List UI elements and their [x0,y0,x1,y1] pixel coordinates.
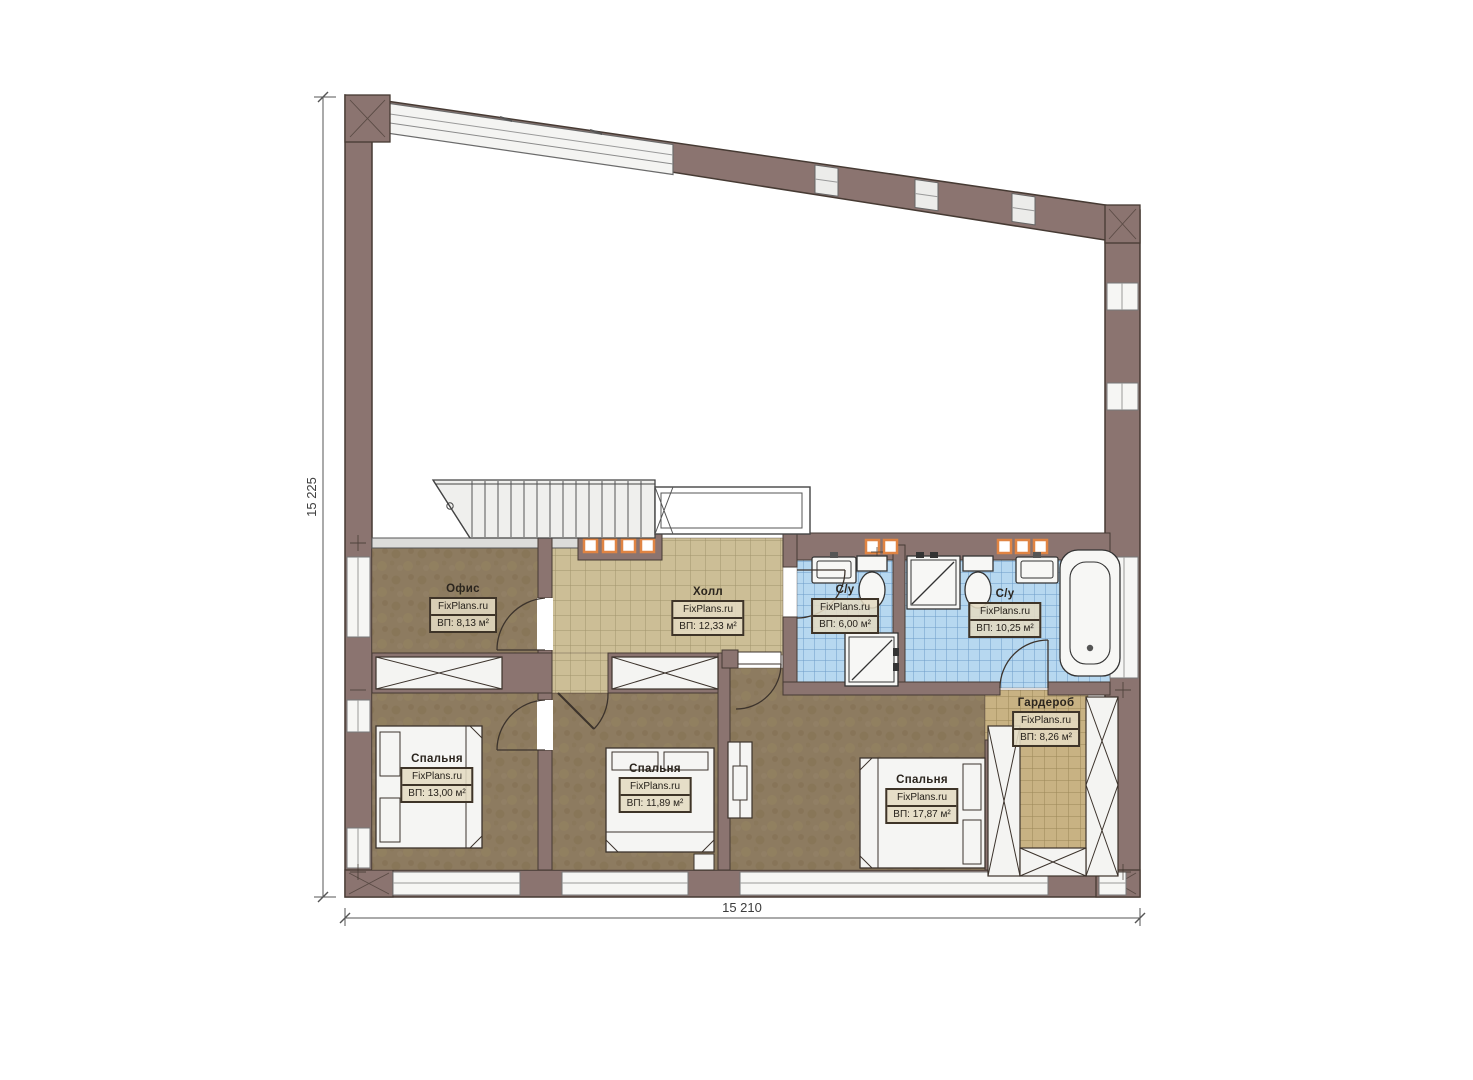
room-label-box: FixPlans.ru ВП: 11,89 м² [619,777,692,813]
room-name: С/у [968,588,1041,600]
watermark-text: FixPlans.ru [1014,713,1078,730]
room-label-office: Офис FixPlans.ru ВП: 8,13 м² [429,583,497,633]
bedroom-1-closet [376,657,502,689]
room-name: Спальня [619,763,692,775]
room-label-box: FixPlans.ru ВП: 17,87 м² [885,788,958,824]
staircase [433,480,810,538]
wardrobe-unit-bottom [1020,848,1086,876]
shower-bath-large [907,552,960,609]
nightstand [694,854,714,870]
room-label-box: FixPlans.ru ВП: 10,25 м² [968,602,1041,638]
sink-bath-large [1016,552,1058,583]
dimension-left-label: 15 225 [304,477,319,517]
room-area: ВП: 10,25 м² [970,621,1039,636]
bathtub [1060,550,1120,676]
watermark-text: FixPlans.ru [813,600,877,617]
dimension-left: 15 225 [304,92,336,902]
room-label-bedroom-1: Спальня FixPlans.ru ВП: 13,00 м² [400,753,473,803]
dimension-bottom-label: 15 210 [722,900,762,915]
room-area: ВП: 11,89 м² [621,796,690,811]
floor-plan-canvas: 15 225 15 210 Офис FixPlans.ru ВП: 8,13 … [0,0,1473,1080]
wardrobe-unit-left [988,726,1020,876]
hall-corridor-floor [552,653,608,693]
dimension-bottom: 15 210 [340,900,1145,926]
room-label-bath-small: С/у FixPlans.ru ВП: 6,00 м² [811,584,879,634]
room-label-hall: Холл FixPlans.ru ВП: 12,33 м² [671,586,744,636]
watermark-text: FixPlans.ru [402,769,471,786]
room-label-box: FixPlans.ru ВП: 12,33 м² [671,600,744,636]
room-name: Гардероб [1012,697,1080,709]
room-name: Офис [429,583,497,595]
room-area: ВП: 8,26 м² [1014,730,1078,745]
watermark-text: FixPlans.ru [970,604,1039,621]
room-label-bedroom-2: Спальня FixPlans.ru ВП: 11,89 м² [619,763,692,813]
watermark-text: FixPlans.ru [431,599,495,616]
radiator [728,742,752,818]
watermark-text: FixPlans.ru [887,790,956,807]
room-label-bedroom-3: Спальня FixPlans.ru ВП: 17,87 м² [885,774,958,824]
room-label-wardrobe: Гардероб FixPlans.ru ВП: 8,26 м² [1012,697,1080,747]
stair-railing [655,487,810,534]
room-label-bath-large: С/у FixPlans.ru ВП: 10,25 м² [968,588,1041,638]
room-area: ВП: 17,87 м² [887,807,956,822]
room-name: Спальня [885,774,958,786]
bedroom-2-closet [612,657,718,689]
room-label-box: FixPlans.ru ВП: 6,00 м² [811,598,879,634]
watermark-text: FixPlans.ru [621,779,690,796]
room-area: ВП: 8,13 м² [431,616,495,631]
room-label-box: FixPlans.ru ВП: 13,00 м² [400,767,473,803]
sink-bath-small [812,552,856,583]
floor-plan-drawing: 15 225 15 210 [0,0,1473,1080]
room-name: С/у [811,584,879,596]
room-area: ВП: 12,33 м² [673,619,742,634]
room-name: Холл [671,586,744,598]
room-area: ВП: 13,00 м² [402,786,471,801]
shower-bath-small [845,633,899,686]
room-name: Спальня [400,753,473,765]
room-label-box: FixPlans.ru ВП: 8,26 м² [1012,711,1080,747]
room-label-box: FixPlans.ru ВП: 8,13 м² [429,597,497,633]
watermark-text: FixPlans.ru [673,602,742,619]
room-area: ВП: 6,00 м² [813,617,877,632]
wardrobe-unit-right [1086,697,1118,876]
top-window-band [383,103,673,175]
